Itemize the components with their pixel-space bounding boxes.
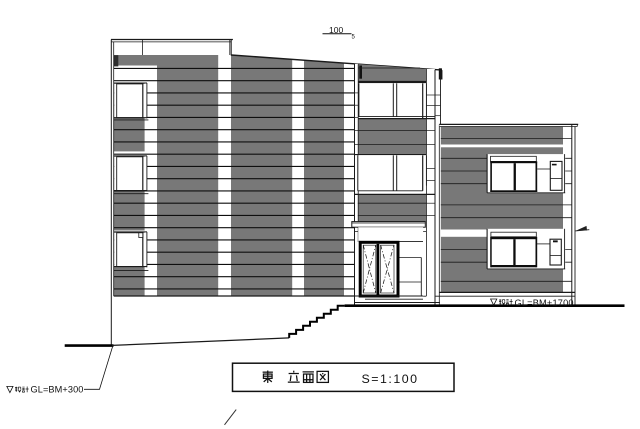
svg-text:S=1:100: S=1:100 xyxy=(362,372,419,386)
svg-text:GL=BM+1700: GL=BM+1700 xyxy=(515,298,574,308)
svg-text:GL=BM+300: GL=BM+300 xyxy=(31,385,84,395)
